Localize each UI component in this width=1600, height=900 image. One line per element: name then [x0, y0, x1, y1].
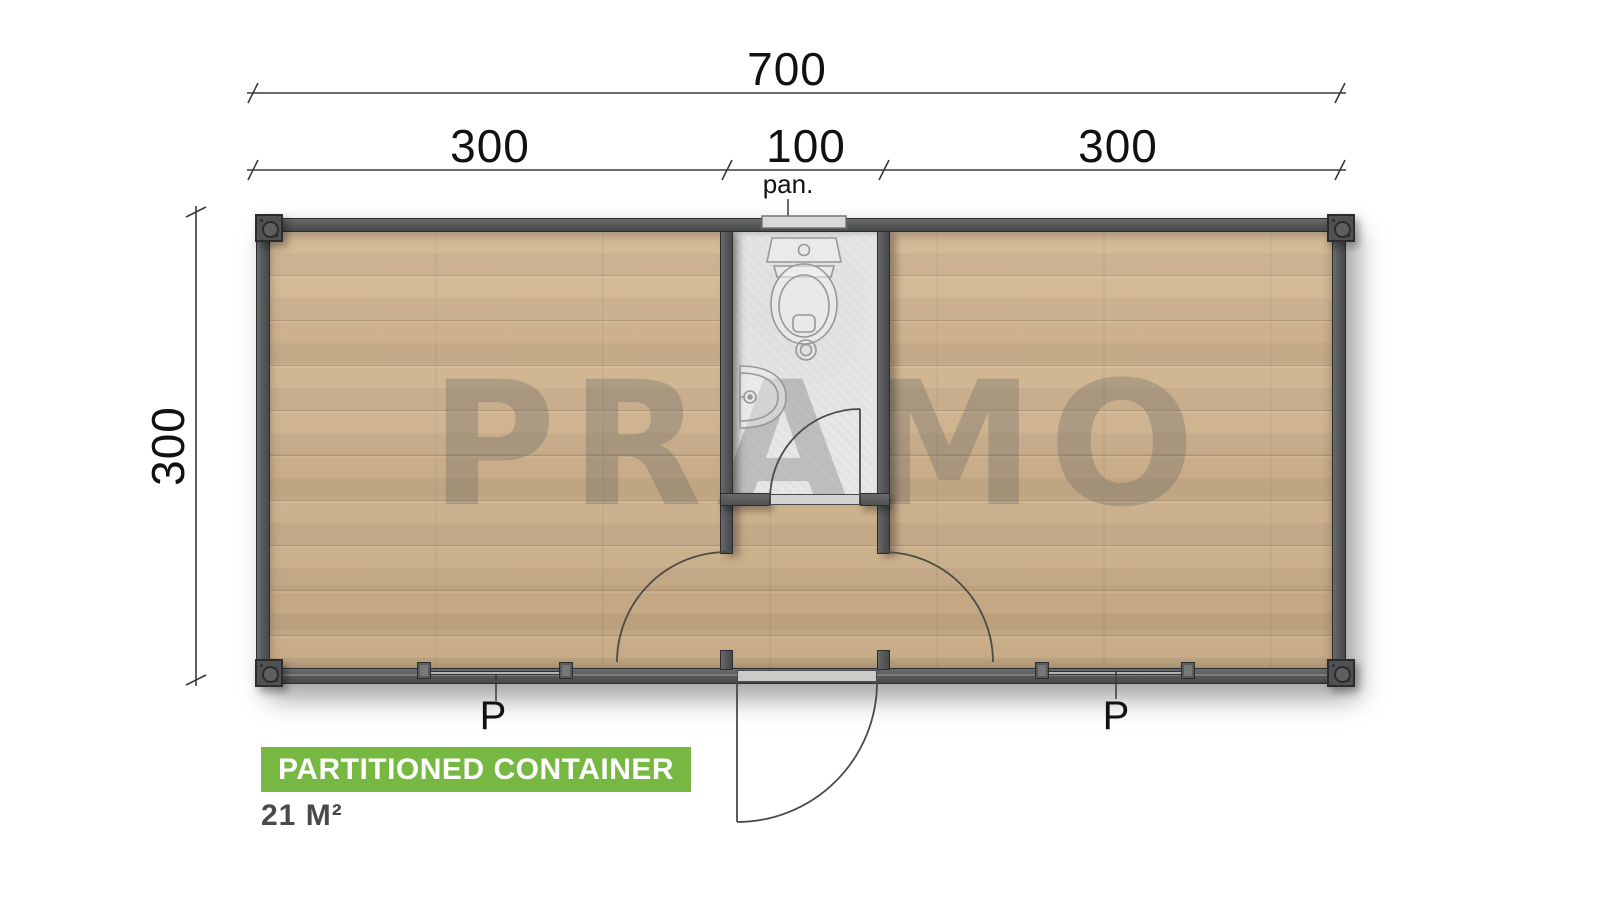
dimension-label-total-width: 700	[687, 46, 887, 92]
window-post	[559, 662, 573, 679]
bathroom-door-threshold	[770, 494, 860, 505]
window-post	[417, 662, 431, 679]
area-label: 21 M²	[261, 799, 343, 833]
window-label-left: P	[463, 696, 523, 736]
corner-fitting-top-left	[255, 214, 283, 242]
dimension-label-right-room-width: 300	[1018, 123, 1218, 169]
corner-fitting-bottom-left	[255, 659, 283, 687]
window-left	[430, 671, 560, 675]
corner-fitting-bottom-right	[1327, 659, 1355, 687]
window-post	[1181, 662, 1195, 679]
partition-right-door-post	[877, 650, 890, 670]
watermark-text: PRAMO	[430, 352, 1170, 542]
dimension-label-left-room-width: 300	[390, 123, 590, 169]
panel-label: pan.	[738, 171, 838, 197]
floor-plan-page: { "plan": { "watermark": "PRAMO", "dims"…	[0, 0, 1600, 900]
wall-top	[256, 218, 1346, 232]
bathroom-wall-right-segment	[860, 493, 890, 506]
window-label-right: P	[1086, 696, 1146, 736]
dimension-label-middle-width: 100	[706, 123, 906, 169]
corner-fitting-top-right	[1327, 214, 1355, 242]
entrance-door-arc	[737, 682, 877, 822]
window-right	[1048, 671, 1182, 675]
window-post	[1035, 662, 1049, 679]
wall-right	[1332, 218, 1346, 684]
entrance-door-threshold	[737, 670, 877, 682]
partition-left-door-post	[720, 650, 733, 670]
product-title-badge: PARTITIONED CONTAINER	[261, 747, 691, 792]
dimension-label-depth: 300	[143, 371, 193, 521]
wall-left	[256, 218, 270, 684]
bathroom-wall-left-segment	[720, 493, 770, 506]
